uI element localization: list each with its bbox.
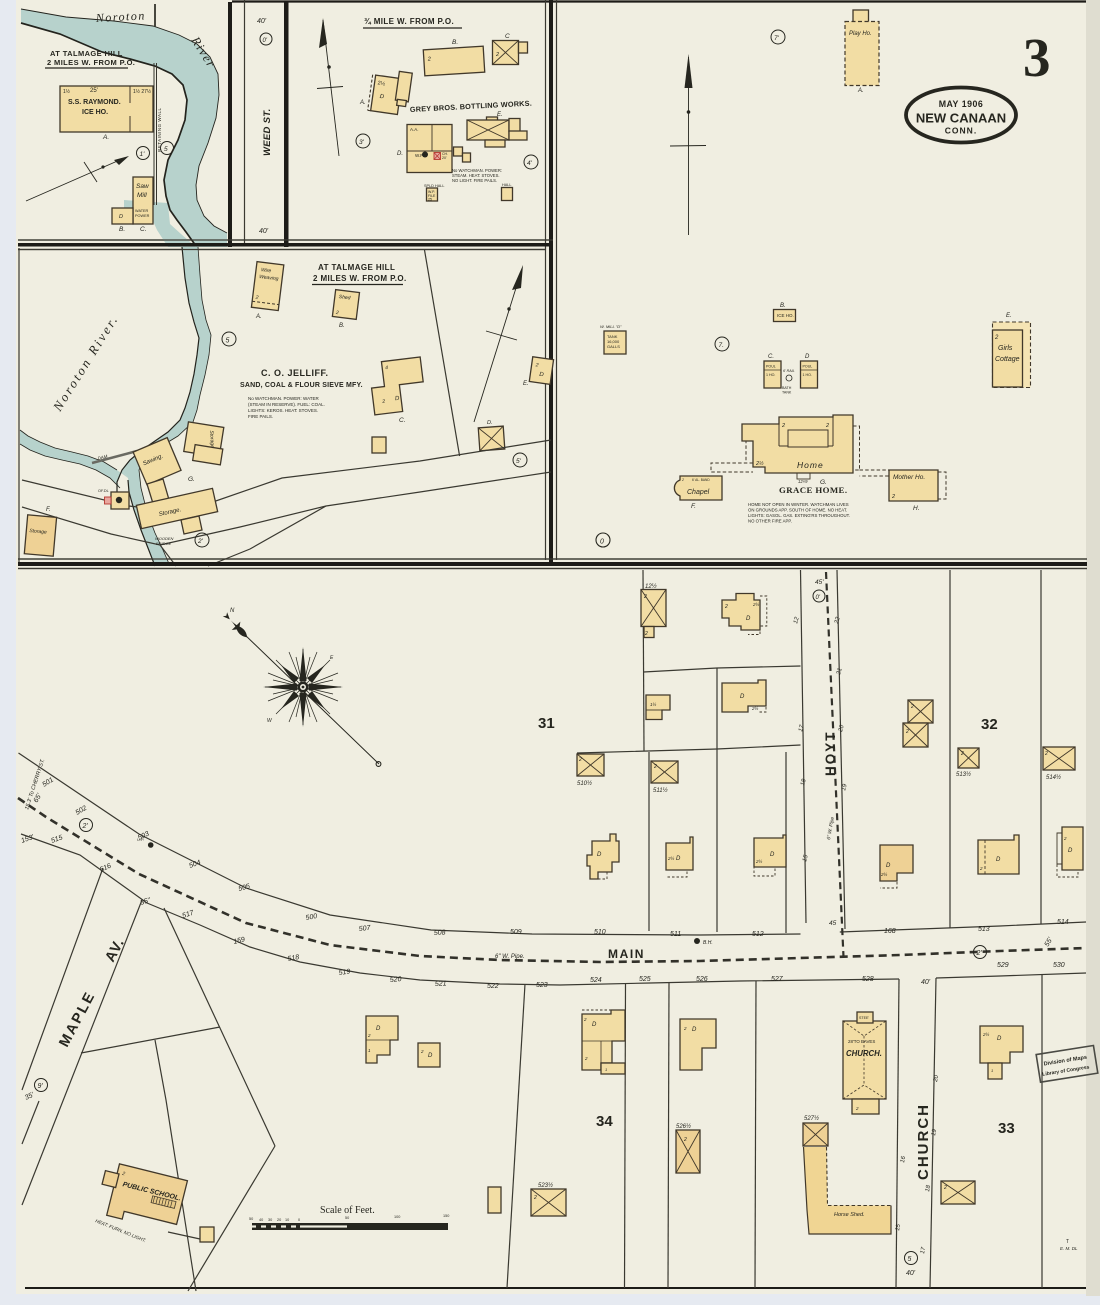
svg-text:F.: F. — [691, 503, 696, 510]
svg-text:WATER: WATER — [135, 209, 149, 213]
svg-text:POUL: POUL — [803, 365, 813, 369]
svg-text:WEED ST.: WEED ST. — [262, 108, 273, 156]
svg-text:513½: 513½ — [956, 771, 971, 778]
svg-text:40': 40' — [257, 18, 267, 25]
svg-text:50: 50 — [249, 1217, 253, 1221]
svg-text:522: 522 — [487, 983, 499, 990]
svg-text:2: 2 — [533, 1195, 537, 1201]
svg-text:G.: G. — [188, 476, 195, 483]
svg-text:524: 524 — [590, 977, 602, 984]
svg-text:2: 2 — [643, 594, 647, 600]
svg-text:GRACE HOME.: GRACE HOME. — [779, 485, 847, 495]
svg-text:526: 526 — [696, 976, 708, 983]
svg-text:B.: B. — [780, 303, 786, 309]
svg-text:S.S. RAYMOND.: S.S. RAYMOND. — [68, 99, 121, 106]
svg-text:Play Ho.: Play Ho. — [849, 31, 872, 37]
svg-text:D: D — [676, 856, 681, 862]
svg-text:50: 50 — [345, 1216, 349, 1220]
svg-text:2 MILES W. FROM P.O.: 2 MILES W. FROM P.O. — [313, 274, 407, 283]
svg-text:2: 2 — [584, 1056, 588, 1061]
svg-text:2: 2 — [1044, 751, 1048, 757]
svg-text:2 MILES W. FROM P.O.: 2 MILES W. FROM P.O. — [47, 58, 135, 67]
svg-text:B.: B. — [339, 323, 345, 329]
svg-text:STEE': STEE' — [859, 1016, 869, 1020]
svg-text:AT TALMAGE HILL: AT TALMAGE HILL — [318, 263, 395, 272]
svg-text:D: D — [597, 852, 602, 858]
svg-text:C: C — [505, 33, 510, 40]
svg-text:5: 5 — [226, 338, 230, 345]
svg-text:2: 2 — [781, 423, 785, 429]
svg-text:POUL: POUL — [766, 365, 776, 369]
svg-text:2: 2 — [943, 1185, 947, 1191]
svg-text:25: 25 — [428, 198, 432, 202]
svg-text:1: 1 — [991, 1068, 993, 1073]
svg-text:ICE HO.: ICE HO. — [82, 109, 108, 116]
svg-text:Home: Home — [797, 460, 824, 470]
svg-text:5: 5 — [164, 146, 168, 153]
svg-text:510½: 510½ — [577, 780, 592, 787]
svg-text:510: 510 — [594, 929, 606, 936]
svg-text:D: D — [119, 214, 123, 220]
svg-text:E. M. DL: E. M. DL — [1060, 1246, 1078, 1251]
svg-text:168: 168 — [884, 928, 896, 935]
svg-text:W.P.: W.P. — [415, 153, 424, 158]
svg-text:2: 2 — [979, 866, 983, 871]
svg-text:B.: B. — [452, 39, 458, 46]
svg-text:526½: 526½ — [676, 1123, 691, 1130]
svg-text:HALL: HALL — [502, 183, 512, 187]
svg-text:Storage: Storage — [208, 430, 215, 448]
svg-text:NEW CANAAN: NEW CANAAN — [916, 111, 1006, 126]
svg-text:2½: 2½ — [982, 1031, 990, 1037]
svg-text:40': 40' — [259, 228, 269, 235]
svg-text:Wire: Wire — [261, 267, 272, 274]
svg-text:12×9: 12×9 — [798, 479, 808, 484]
svg-text:Cottage: Cottage — [995, 356, 1020, 363]
svg-text:9': 9' — [38, 1083, 44, 1090]
svg-text:LIGHTS: GASOL. GAS. EXTING'RS: LIGHTS: GASOL. GAS. EXTING'RS THROUGHOUT… — [748, 513, 850, 518]
svg-text:OF.DL: OF.DL — [98, 489, 109, 493]
svg-text:BRIDGE: BRIDGE — [156, 541, 172, 546]
svg-text:D: D — [886, 863, 891, 869]
svg-text:521: 521 — [435, 980, 447, 988]
svg-text:D: D — [428, 1053, 433, 1059]
svg-text:LIGHTS: KEROS. HEAT: STOVES.: LIGHTS: KEROS. HEAT: STOVES. — [248, 408, 318, 413]
svg-text:MAIN: MAIN — [608, 947, 645, 961]
svg-text:20: 20 — [277, 1218, 281, 1222]
svg-text:2½: 2½ — [880, 871, 888, 877]
svg-text:SAND, COAL & FLOUR SIEVE MFY.: SAND, COAL & FLOUR SIEVE MFY. — [240, 382, 363, 389]
svg-text:2: 2 — [1063, 836, 1067, 841]
svg-text:2: 2 — [994, 335, 999, 341]
svg-text:2: 2 — [960, 751, 964, 757]
svg-text:ON GROUNDS APP. SOUTH OF HOME.: ON GROUNDS APP. SOUTH OF HOME. NO HEAT. — [748, 508, 847, 513]
svg-text:5: 5 — [908, 1256, 912, 1263]
svg-text:33: 33 — [998, 1120, 1015, 1137]
svg-text:30: 30 — [268, 1218, 272, 1222]
svg-text:ICE HO.: ICE HO. — [777, 313, 794, 318]
svg-text:511½: 511½ — [653, 787, 668, 794]
svg-text:32: 32 — [981, 716, 998, 733]
svg-text:D: D — [770, 852, 775, 858]
svg-text:6' AL. BAND: 6' AL. BAND — [692, 478, 710, 482]
svg-text:34: 34 — [596, 1113, 613, 1130]
svg-text:514½: 514½ — [1046, 774, 1061, 781]
svg-text:D.: D. — [397, 151, 403, 157]
svg-text:T: T — [1066, 1239, 1069, 1245]
svg-text:527½: 527½ — [804, 1115, 819, 1122]
svg-text:527: 527 — [771, 976, 784, 983]
svg-text:A.: A. — [359, 100, 366, 106]
svg-text:4': 4' — [527, 160, 533, 167]
svg-text:2: 2 — [683, 1137, 687, 1143]
svg-text:A.A.: A.A. — [410, 127, 419, 132]
svg-text:528: 528 — [862, 976, 874, 983]
svg-text:E.: E. — [497, 112, 503, 118]
svg-text:3: 3 — [1023, 27, 1051, 88]
svg-text:2½: 2½ — [755, 460, 764, 467]
svg-text:45: 45 — [829, 920, 837, 927]
svg-text:(STEAM IN RESERVE). FUEL: COAL: (STEAM IN RESERVE). FUEL: COAL. — [248, 402, 325, 407]
svg-text:HOME NOT OPEN IN WINTER. WATCH: HOME NOT OPEN IN WINTER. WATCHMAN LIVES — [748, 502, 849, 507]
svg-text:2: 2 — [891, 494, 895, 500]
svg-text:1 HO.: 1 HO. — [803, 373, 812, 377]
svg-text:2½: 2½ — [751, 705, 759, 711]
svg-text:511: 511 — [670, 931, 681, 938]
svg-text:D: D — [740, 694, 745, 700]
svg-text:1½: 1½ — [650, 701, 657, 707]
svg-text:U.P.: U.P. — [137, 837, 144, 842]
svg-text:514: 514 — [1057, 919, 1069, 926]
svg-text:523½: 523½ — [538, 1182, 553, 1189]
svg-text:H.: H. — [913, 505, 920, 512]
svg-text:D: D — [746, 616, 751, 622]
svg-text:525: 525 — [639, 976, 651, 983]
svg-text:MAY 1906: MAY 1906 — [939, 99, 984, 109]
svg-text:¾ MILE W. FROM P.O.: ¾ MILE W. FROM P.O. — [364, 17, 454, 26]
svg-text:2: 2 — [825, 423, 829, 429]
svg-text:NO OTHER FIRE APP.: NO OTHER FIRE APP. — [748, 519, 792, 524]
svg-text:7.: 7. — [719, 342, 725, 349]
svg-text:B.: B. — [119, 226, 125, 233]
svg-text:2½: 2½ — [755, 858, 763, 864]
svg-text:D: D — [592, 1022, 597, 1028]
svg-text:40': 40' — [906, 1270, 916, 1277]
svg-text:2: 2 — [367, 1033, 371, 1038]
svg-text:6" W. Pipe.: 6" W. Pipe. — [495, 954, 525, 960]
svg-text:1 HO.: 1 HO. — [766, 373, 775, 377]
svg-text:B.H.: B.H. — [703, 940, 713, 946]
svg-text:A.: A. — [857, 88, 864, 94]
svg-text:2: 2 — [724, 604, 728, 610]
svg-text:1½: 1½ — [63, 88, 71, 95]
svg-text:CHURCH: CHURCH — [915, 1103, 932, 1180]
svg-text:HOYT: HOYT — [823, 730, 838, 776]
svg-text:5': 5' — [516, 458, 522, 465]
svg-text:Noroton: Noroton — [94, 8, 146, 25]
svg-text:D: D — [692, 1027, 697, 1033]
svg-text:1½ 27½: 1½ 27½ — [133, 88, 152, 95]
svg-text:E.: E. — [523, 381, 529, 387]
svg-text:D: D — [376, 1026, 381, 1032]
svg-text:N: N — [230, 608, 235, 614]
svg-text:6' RAIL: 6' RAIL — [783, 369, 795, 373]
svg-text:2: 2 — [420, 1049, 424, 1054]
svg-text:Horse Shed.: Horse Shed. — [834, 1212, 865, 1218]
svg-text:2: 2 — [583, 1017, 587, 1022]
svg-text:C.: C. — [140, 226, 147, 233]
svg-text:3': 3' — [359, 139, 365, 146]
svg-text:512: 512 — [752, 931, 764, 938]
svg-text:GALLS: GALLS — [607, 344, 620, 349]
svg-text:2: 2 — [495, 52, 499, 58]
svg-text:1: 1 — [605, 1067, 607, 1072]
svg-text:0: 0 — [600, 539, 604, 546]
svg-text:2: 2 — [681, 478, 684, 482]
svg-text:CHURCH.: CHURCH. — [846, 1049, 882, 1058]
svg-text:2½: 2½ — [667, 855, 675, 861]
svg-text:20': 20' — [442, 156, 447, 160]
svg-text:CONN.: CONN. — [945, 126, 977, 136]
svg-text:2': 2' — [197, 538, 204, 545]
svg-text:POWER: POWER — [135, 214, 150, 218]
svg-text:2': 2' — [976, 950, 983, 957]
svg-text:45': 45' — [815, 579, 824, 586]
svg-text:FIRE PAILS.: FIRE PAILS. — [248, 414, 273, 419]
svg-text:A.: A. — [255, 314, 262, 320]
svg-text:BATH: BATH — [782, 386, 792, 390]
svg-text:10: 10 — [285, 1218, 289, 1222]
svg-text:D.: D. — [487, 420, 493, 426]
svg-text:31: 31 — [538, 715, 555, 732]
svg-text:AT TALMAGE HILL: AT TALMAGE HILL — [50, 49, 123, 58]
svg-text:40': 40' — [921, 979, 931, 986]
svg-text:513: 513 — [978, 926, 990, 933]
svg-text:2: 2 — [910, 704, 914, 710]
svg-text:Mill: Mill — [137, 192, 147, 199]
svg-text:C.: C. — [399, 417, 406, 424]
svg-text:0: 0 — [298, 1218, 300, 1222]
svg-text:TANK: TANK — [782, 391, 792, 395]
svg-text:D: D — [1068, 848, 1073, 854]
svg-text:520: 520 — [390, 976, 402, 984]
svg-text:509: 509 — [510, 929, 522, 936]
svg-text:2': 2' — [82, 823, 89, 830]
svg-text:40: 40 — [259, 1218, 263, 1222]
svg-text:530: 530 — [1053, 962, 1065, 969]
svg-text:2: 2 — [905, 729, 909, 735]
svg-text:F.: F. — [46, 507, 51, 513]
svg-text:25': 25' — [90, 88, 98, 94]
svg-text:W. MILL "D": W. MILL "D" — [600, 324, 622, 329]
svg-text:D: D — [996, 857, 1001, 863]
svg-text:529: 529 — [997, 962, 1009, 969]
svg-text:150: 150 — [443, 1214, 449, 1218]
svg-text:Girls: Girls — [998, 345, 1013, 352]
svg-text:2½: 2½ — [752, 601, 760, 607]
svg-text:Mother Ho.: Mother Ho. — [893, 474, 925, 481]
svg-text:E.: E. — [1006, 313, 1012, 319]
svg-text:2: 2 — [653, 764, 657, 770]
svg-text:D: D — [805, 354, 810, 360]
svg-text:100: 100 — [394, 1215, 400, 1219]
svg-text:D: D — [997, 1036, 1002, 1042]
svg-text:2: 2 — [683, 1026, 687, 1031]
svg-text:28'TO EAVES: 28'TO EAVES — [848, 1039, 875, 1044]
svg-text:2: 2 — [644, 631, 648, 637]
svg-text:Chapel: Chapel — [687, 489, 710, 496]
svg-text:508: 508 — [434, 929, 446, 937]
svg-text:A.: A. — [102, 134, 109, 141]
svg-text:1': 1' — [140, 151, 146, 158]
svg-text:523: 523 — [536, 982, 548, 989]
svg-text:C. O. JELLIFF.: C. O. JELLIFF. — [261, 368, 329, 378]
svg-text:7': 7' — [774, 35, 780, 42]
svg-text:2: 2 — [578, 757, 582, 763]
svg-text:NO LIGHT. FIRE PAILS.: NO LIGHT. FIRE PAILS. — [452, 178, 497, 183]
svg-text:2: 2 — [427, 56, 431, 62]
svg-text:C.: C. — [768, 354, 774, 360]
svg-text:No WATCHMAN. POWER: WATER: No WATCHMAN. POWER: WATER — [248, 396, 319, 401]
svg-text:2½: 2½ — [377, 79, 386, 87]
svg-text:Scale of Feet.: Scale of Feet. — [320, 1205, 375, 1216]
svg-text:507: 507 — [358, 925, 371, 933]
svg-text:Saw: Saw — [136, 183, 150, 190]
svg-text:2: 2 — [855, 1106, 859, 1111]
